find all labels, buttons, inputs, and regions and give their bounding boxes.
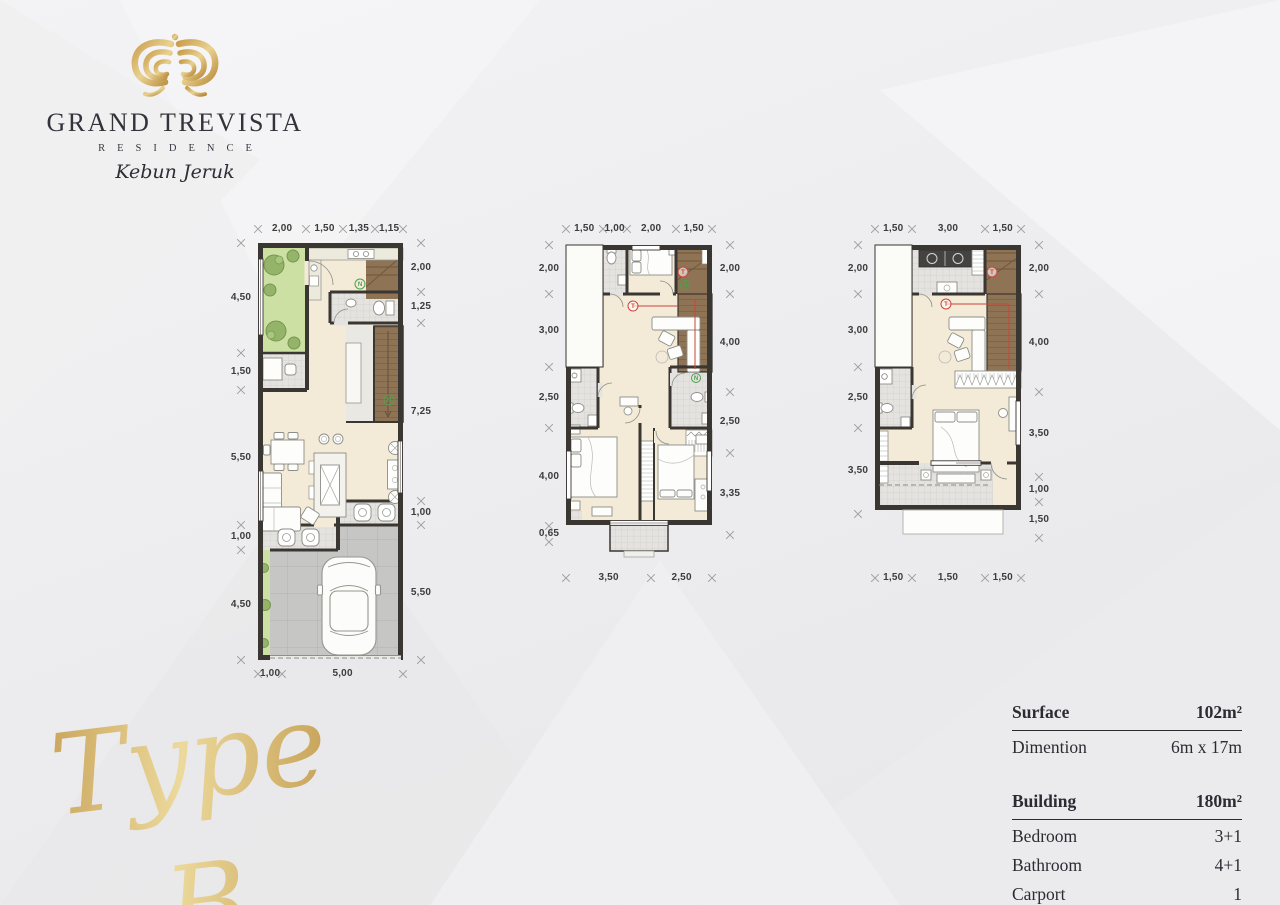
washing-machines: [919, 250, 973, 267]
dim-tick-icon: [237, 521, 245, 529]
dim-label: 5,50: [231, 453, 251, 463]
spec-value: 6m x 17m: [1171, 737, 1242, 758]
dim-label: 1,50: [883, 224, 903, 234]
dim-tick-icon: [545, 363, 553, 371]
dim-label: 7,25: [411, 407, 431, 417]
spec-row: Dimention6m x 17m: [1012, 733, 1242, 762]
dim-label: 1,50: [684, 224, 704, 234]
spec-label: Bathroom: [1012, 855, 1082, 876]
spec-row: Bedroom3+1: [1012, 822, 1242, 851]
dim-label: 2,00: [1029, 264, 1049, 274]
brand-location-script: Kebun Jeruk: [40, 161, 310, 183]
north-letter: N: [358, 282, 362, 288]
void-area: [566, 245, 603, 367]
spec-label: Surface: [1012, 702, 1069, 723]
dim-label: 4,00: [1029, 338, 1049, 348]
spec-label: Carport: [1012, 884, 1065, 905]
dim-label: 2,50: [539, 393, 559, 403]
dim-tick-icon: [871, 574, 879, 582]
toilet-icon: [572, 404, 584, 413]
dim-tick-icon: [417, 497, 425, 505]
dim-label: 1,00: [260, 669, 280, 679]
dim-tick-icon: [1035, 241, 1043, 249]
dim-tick-icon: [237, 349, 245, 357]
dim-tick-icon: [1035, 498, 1043, 506]
bed-top: [630, 248, 675, 275]
stove-icon: [348, 250, 374, 259]
north-letter: N: [683, 283, 687, 289]
dim-tick-icon: [854, 424, 862, 432]
dim-label: 2,50: [720, 417, 740, 427]
dim-label: 2,00: [539, 264, 559, 274]
dim-tick-icon: [562, 574, 570, 582]
sink-icon: [346, 299, 356, 307]
car: [318, 557, 381, 655]
dim-tick-icon: [545, 241, 553, 249]
dim-label: 1,50: [883, 573, 903, 583]
dim-label: 0,65: [539, 529, 559, 539]
dim-label: 1,50: [938, 573, 958, 583]
dim-label: 2,50: [848, 393, 868, 403]
dim-tick-icon: [726, 241, 734, 249]
dim-tick-icon: [237, 386, 245, 394]
dim-tick-icon: [854, 510, 862, 518]
sink-icon: [901, 417, 910, 428]
dim-tick-icon: [399, 225, 407, 233]
laundry-shelf: [972, 247, 985, 275]
dim-tick-icon: [417, 288, 425, 296]
dim-tick-icon: [672, 225, 680, 233]
dim-label: 4,00: [720, 338, 740, 348]
brand-subtitle: RESIDENCE: [40, 143, 310, 154]
dim-tick-icon: [302, 225, 310, 233]
dim-label: 1,50: [231, 367, 251, 377]
dim-tick-icon: [545, 424, 553, 432]
turn-letter: T: [631, 304, 635, 310]
dim-tick-icon: [708, 574, 716, 582]
spec-row: Surface102m²: [1012, 698, 1242, 731]
dim-tick-icon: [237, 239, 245, 247]
dim-label: 2,50: [671, 573, 691, 583]
spec-label: Building: [1012, 791, 1076, 812]
turn-letter: T: [990, 270, 994, 276]
spec-row: Carport1: [1012, 880, 1242, 905]
dim-tick-icon: [545, 538, 553, 546]
toilet-icon: [607, 252, 616, 264]
desk: [263, 358, 282, 380]
kitchen-sink-icon: [311, 265, 317, 271]
wardrobe-center: [640, 441, 654, 501]
type-label: Type B: [2, 667, 395, 905]
dim-tick-icon: [399, 670, 407, 678]
dim-tick-icon: [854, 363, 862, 371]
dim-label: 5,00: [332, 669, 352, 679]
dim-tick-icon: [1035, 388, 1043, 396]
floorplan-second: T T N N: [566, 245, 712, 558]
dim-label: 1,25: [411, 302, 431, 312]
spec-value: 4+1: [1215, 855, 1242, 876]
floorplan-ground: N N: [258, 243, 403, 660]
dim-tick-icon: [1017, 225, 1025, 233]
dim-tick-icon: [726, 531, 734, 539]
dim-tick-icon: [1017, 574, 1025, 582]
dim-label: 1,35: [349, 224, 369, 234]
dim-tick-icon: [562, 225, 570, 233]
dim-label: 1,50: [993, 224, 1013, 234]
floorplan-third: T T: [875, 245, 1021, 539]
dim-tick-icon: [708, 225, 716, 233]
brand-logo-butterfly-icon: [127, 30, 223, 104]
dim-tick-icon: [254, 225, 262, 233]
dim-label: 2,00: [720, 264, 740, 274]
spec-value: 3+1: [1215, 826, 1242, 847]
dim-label: 3,35: [720, 489, 740, 499]
north-letter: N: [387, 398, 391, 404]
dim-tick-icon: [981, 574, 989, 582]
dim-label: 3,50: [848, 466, 868, 476]
dim-label: 1,00: [1029, 485, 1049, 495]
spec-table: Surface102m²Dimention6m x 17mBuilding180…: [1012, 698, 1242, 905]
dim-tick-icon: [545, 290, 553, 298]
dim-tick-icon: [871, 225, 879, 233]
dim-label: 2,00: [272, 224, 292, 234]
dim-tick-icon: [1035, 473, 1043, 481]
dim-label: 5,50: [411, 588, 431, 598]
north-letter: N: [694, 376, 698, 382]
spec-row: Building180m²: [1012, 787, 1242, 820]
dim-label: 1,00: [605, 224, 625, 234]
dim-label: 4,50: [231, 293, 251, 303]
dim-tick-icon: [1035, 290, 1043, 298]
turn-letter: T: [944, 302, 948, 308]
dim-tick-icon: [726, 388, 734, 396]
dim-label: 3,50: [1029, 429, 1049, 439]
dim-tick-icon: [417, 521, 425, 529]
dim-tick-icon: [237, 656, 245, 664]
brand-name: GRAND TREVISTA: [40, 108, 310, 138]
dim-tick-icon: [647, 574, 655, 582]
spec-value: 180m²: [1196, 791, 1242, 812]
dim-tick-icon: [339, 225, 347, 233]
wardrobe: [955, 371, 1021, 388]
spec-value: 102m²: [1196, 702, 1242, 723]
dim-label: 1,50: [314, 224, 334, 234]
dim-label: 4,50: [231, 600, 251, 610]
dim-label: 2,00: [848, 264, 868, 274]
dim-tick-icon: [417, 656, 425, 664]
dim-tick-icon: [726, 290, 734, 298]
dim-label: 1,50: [574, 224, 594, 234]
dim-tick-icon: [908, 225, 916, 233]
dim-label: 3,00: [848, 326, 868, 336]
toilet-icon: [691, 393, 703, 402]
spec-label: Dimention: [1012, 737, 1087, 758]
turn-letter: T: [681, 270, 685, 276]
dim-label: 2,00: [411, 263, 431, 273]
dim-label: 1,00: [231, 532, 251, 542]
sink-icon: [588, 415, 597, 426]
dim-tick-icon: [908, 574, 916, 582]
dim-label: 3,00: [938, 224, 958, 234]
dim-tick-icon: [1035, 534, 1043, 542]
dim-tick-icon: [854, 290, 862, 298]
stairs-run: [987, 294, 1021, 372]
brochure-page: GRAND TREVISTA RESIDENCE Kebun Jeruk Typ…: [0, 0, 1280, 905]
desk-chair: [285, 364, 296, 375]
dim-tick-icon: [726, 449, 734, 457]
dim-label: 2,00: [641, 224, 661, 234]
balcony: [610, 521, 668, 558]
sink-icon: [618, 275, 626, 285]
dim-tick-icon: [417, 239, 425, 247]
toilet-icon: [881, 404, 893, 413]
dim-tick-icon: [237, 546, 245, 554]
void-area: [875, 245, 912, 367]
toilet-icon: [374, 301, 385, 315]
dim-label: 1,15: [379, 224, 399, 234]
spec-label: Bedroom: [1012, 826, 1077, 847]
spec-value: 1: [1233, 884, 1242, 905]
brand-block: GRAND TREVISTA RESIDENCE Kebun Jeruk: [40, 30, 310, 183]
dim-tick-icon: [417, 319, 425, 327]
dim-label: 3,00: [539, 326, 559, 336]
dim-tick-icon: [854, 241, 862, 249]
spec-row: Bathroom4+1: [1012, 851, 1242, 880]
dim-label: 1,00: [411, 508, 431, 518]
dim-label: 1,50: [1029, 515, 1049, 525]
dim-label: 4,00: [539, 472, 559, 482]
dim-label: 3,50: [598, 573, 618, 583]
dim-tick-icon: [981, 225, 989, 233]
dim-label: 1,50: [993, 573, 1013, 583]
